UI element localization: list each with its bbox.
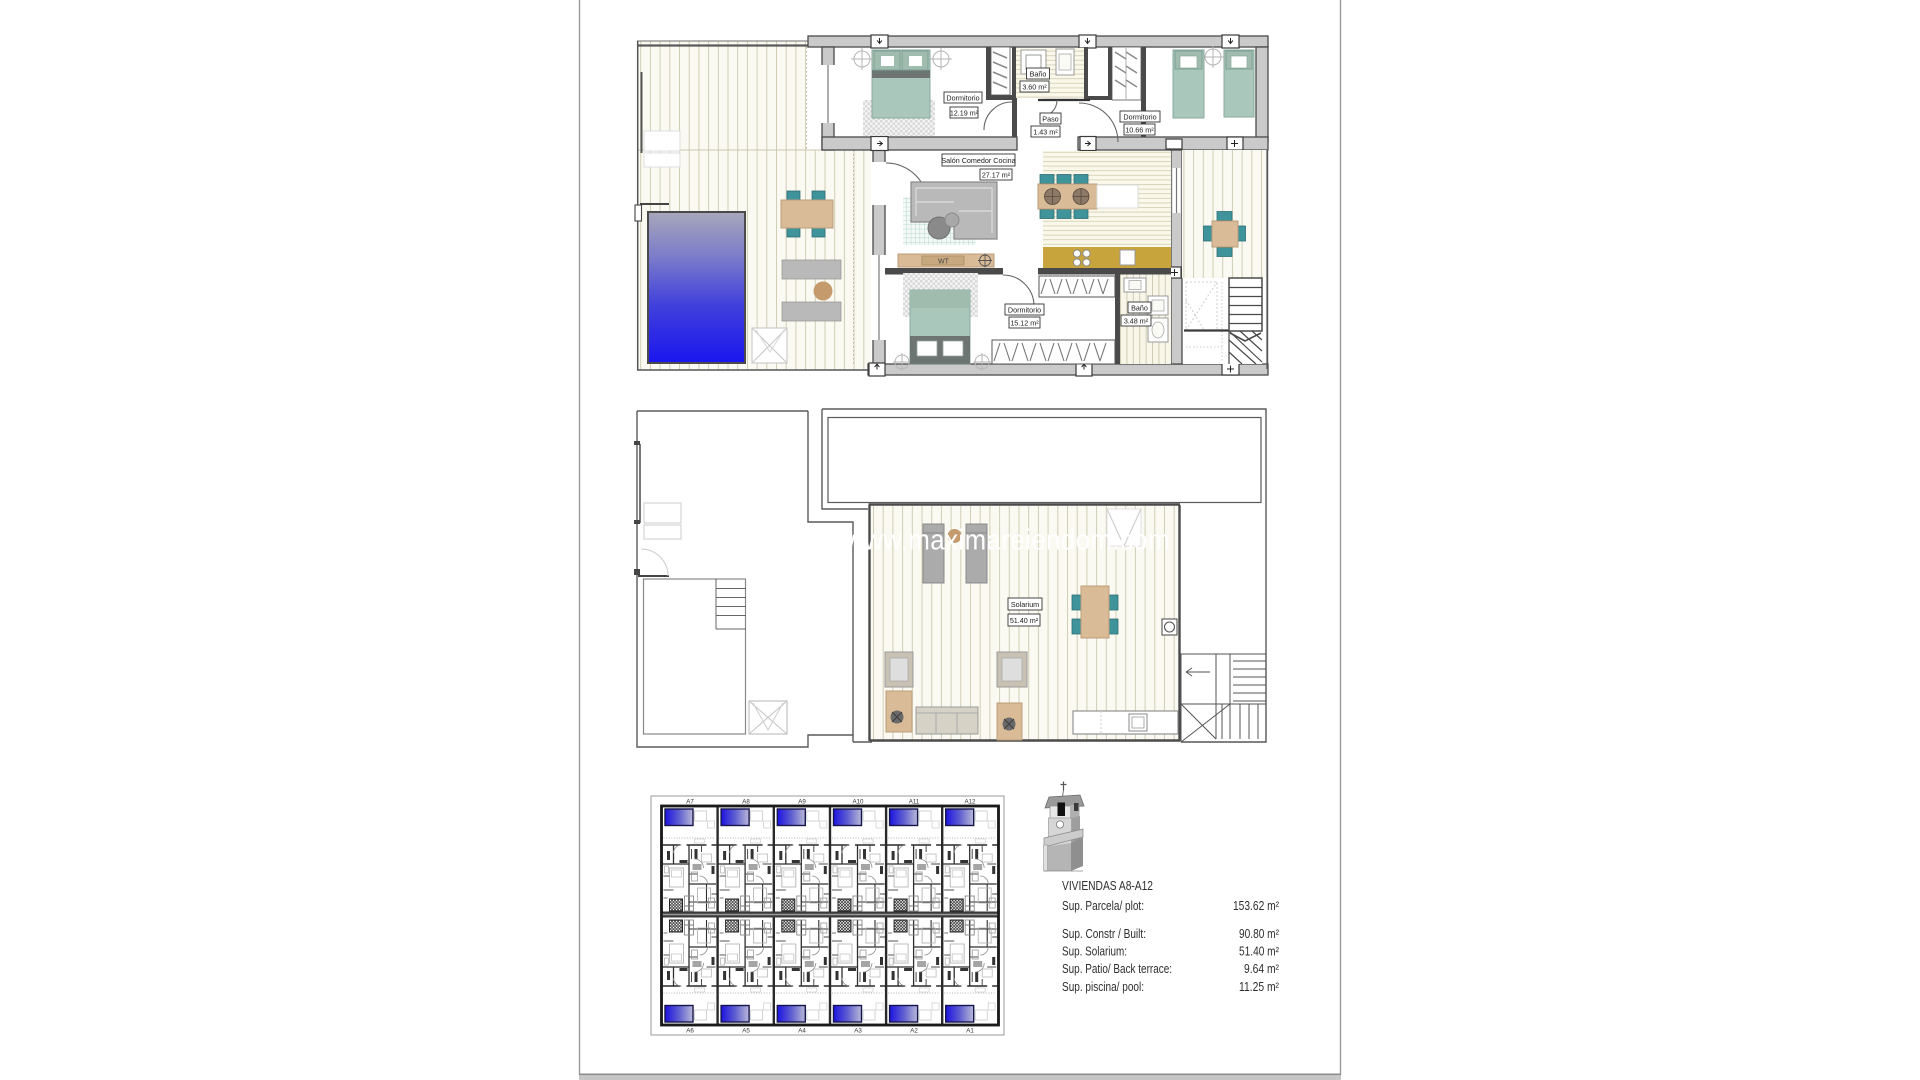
svg-text:A8: A8 — [742, 799, 750, 806]
svg-text:3.48 m²: 3.48 m² — [1124, 317, 1149, 326]
svg-text:A2: A2 — [910, 1028, 918, 1035]
svg-text:153.62 m²: 153.62 m² — [1233, 899, 1279, 913]
svg-text:Baño: Baño — [1131, 304, 1148, 313]
svg-text:11.25 m²: 11.25 m² — [1239, 980, 1279, 994]
svg-text:Paso: Paso — [1042, 115, 1058, 124]
svg-text:Dormitorio: Dormitorio — [1123, 113, 1156, 122]
svg-text:1.43 m²: 1.43 m² — [1033, 128, 1058, 137]
svg-text:51.40 m²: 51.40 m² — [1239, 945, 1279, 959]
svg-text:A3: A3 — [854, 1028, 862, 1035]
svg-text:A11: A11 — [909, 799, 920, 806]
svg-text:15.12 m²: 15.12 m² — [1010, 319, 1039, 328]
svg-text:A12: A12 — [964, 799, 976, 806]
svg-text:3.60 m²: 3.60 m² — [1022, 83, 1047, 92]
svg-text:Dormitorio: Dormitorio — [1008, 306, 1041, 315]
svg-text:A9: A9 — [798, 799, 806, 806]
svg-text:www.maximareiendom.com: www.maximareiendom.com — [844, 525, 1170, 557]
svg-text:Solarium: Solarium — [1011, 600, 1039, 609]
svg-text:90.80 m²: 90.80 m² — [1239, 927, 1279, 941]
svg-text:VIVIENDAS A8-A12: VIVIENDAS A8-A12 — [1062, 878, 1153, 893]
svg-text:Sup. piscina/ pool:: Sup. piscina/ pool: — [1062, 980, 1144, 994]
svg-text:27.17 m²: 27.17 m² — [982, 171, 1011, 180]
svg-text:A1: A1 — [966, 1028, 974, 1035]
svg-text:A4: A4 — [798, 1028, 806, 1035]
svg-text:Salón Comedor Cocina: Salón Comedor Cocina — [941, 156, 1015, 165]
svg-text:A10: A10 — [852, 799, 864, 806]
svg-text:A6: A6 — [686, 1028, 694, 1035]
svg-text:Sup. Patio/ Back terrace:: Sup. Patio/ Back terrace: — [1062, 962, 1172, 976]
svg-text:12.19 m²: 12.19 m² — [950, 109, 979, 118]
svg-text:Dormitorio: Dormitorio — [946, 94, 979, 103]
svg-text:Sup. Parcela/ plot:: Sup. Parcela/ plot: — [1062, 899, 1144, 913]
svg-text:Sup. Constr / Built:: Sup. Constr / Built: — [1062, 927, 1146, 941]
svg-text:51.40 m²: 51.40 m² — [1010, 616, 1039, 625]
svg-text:A7: A7 — [686, 799, 694, 806]
svg-text:Sup. Solarium:: Sup. Solarium: — [1062, 945, 1127, 959]
svg-text:10.66 m²: 10.66 m² — [1125, 126, 1154, 135]
svg-text:WT: WT — [938, 259, 950, 266]
svg-text:9.64 m²: 9.64 m² — [1244, 962, 1279, 976]
svg-text:Baño: Baño — [1030, 70, 1047, 79]
svg-text:A5: A5 — [742, 1028, 750, 1035]
